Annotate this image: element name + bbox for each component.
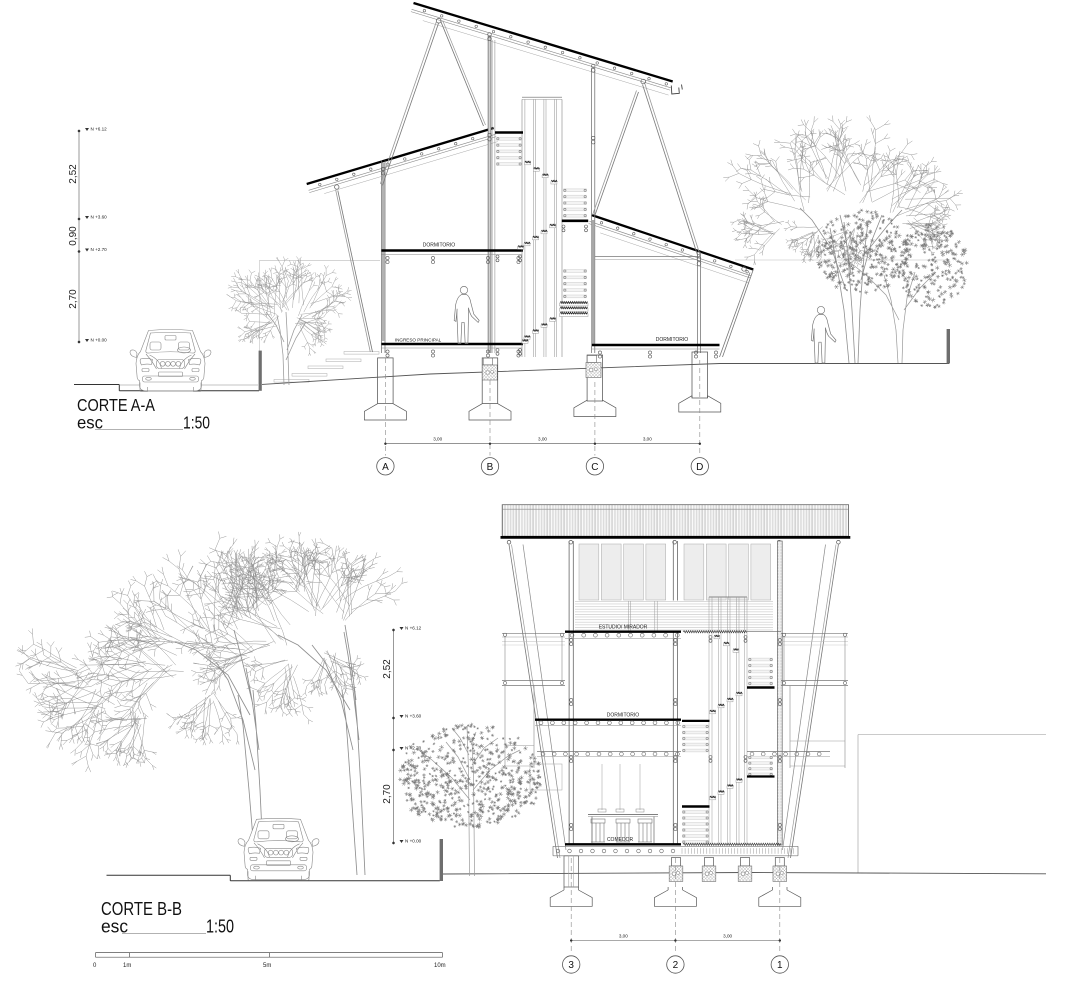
svg-text:C: C <box>591 462 598 473</box>
svg-text:2,52: 2,52 <box>382 659 393 679</box>
svg-text:10m: 10m <box>434 963 446 969</box>
svg-text:ESTUDIO/ MIRADOR: ESTUDIO/ MIRADOR <box>599 625 648 631</box>
svg-text:A: A <box>382 462 389 473</box>
svg-text:N +6.12: N +6.12 <box>405 626 422 631</box>
svg-text:2,70: 2,70 <box>68 289 79 309</box>
svg-text:3,00: 3,00 <box>538 437 547 442</box>
svg-text:3,00: 3,00 <box>643 437 652 442</box>
svg-text:N +3.60: N +3.60 <box>91 215 108 220</box>
svg-text:1:50: 1:50 <box>183 413 210 433</box>
svg-text:3,00: 3,00 <box>619 934 628 939</box>
svg-text:5m: 5m <box>263 963 271 969</box>
svg-text:3,00: 3,00 <box>433 437 442 442</box>
svg-text:2,70: 2,70 <box>382 784 393 804</box>
svg-text:2,52: 2,52 <box>68 164 79 184</box>
svg-text:N +0.00: N +0.00 <box>91 338 108 343</box>
svg-text:N +2.70: N +2.70 <box>405 746 422 751</box>
svg-text:3,00: 3,00 <box>723 934 732 939</box>
svg-text:N +2.70: N +2.70 <box>91 247 108 252</box>
svg-text:1m: 1m <box>123 963 131 969</box>
svg-text:2: 2 <box>673 960 679 971</box>
svg-text:B: B <box>487 462 494 473</box>
svg-text:1:50: 1:50 <box>206 917 234 937</box>
svg-text:DORMITORIO: DORMITORIO <box>656 337 689 343</box>
svg-text:1: 1 <box>777 960 783 971</box>
svg-text:N +6.12: N +6.12 <box>91 127 108 132</box>
svg-text:N +0.00: N +0.00 <box>405 839 422 844</box>
svg-text:N +3.60: N +3.60 <box>405 714 422 719</box>
svg-text:DORMITORIO: DORMITORIO <box>423 243 456 249</box>
svg-text:INGRESO PRINCIPAL: INGRESO PRINCIPAL <box>395 338 442 343</box>
svg-text:0,90: 0,90 <box>68 226 79 246</box>
svg-text:3: 3 <box>568 960 574 971</box>
svg-text:D: D <box>696 462 703 473</box>
svg-text:DORMITORIO: DORMITORIO <box>607 713 640 719</box>
